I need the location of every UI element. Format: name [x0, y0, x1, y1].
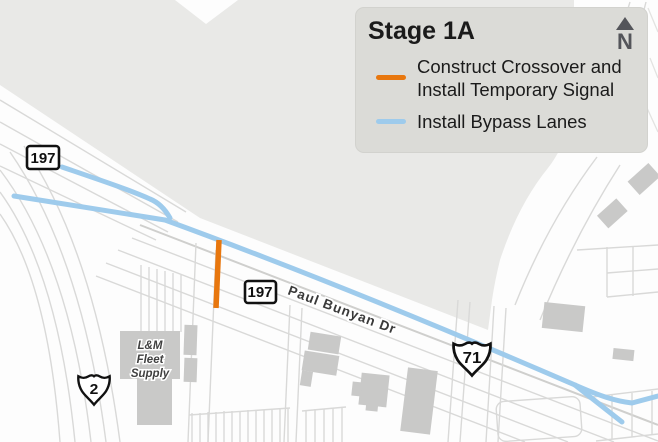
construction-staging-map: 197 197 2 71 Paul Bunyan Dr L&M Fleet Su…	[0, 0, 658, 442]
legend-item-crossover-line1: Construct Crossover and	[417, 55, 622, 78]
route-shield-197-west: 197	[27, 146, 59, 169]
bypass-swatch-icon	[376, 119, 406, 124]
route-shield-us2: 2	[78, 375, 109, 404]
legend-item-bypass: Install Bypass Lanes	[368, 110, 635, 133]
legend-items: Construct Crossover and Install Temporar…	[368, 55, 635, 133]
north-indicator: N	[616, 17, 634, 53]
crossover-swatch-icon	[376, 75, 406, 80]
legend-item-crossover-line2: Install Temporary Signal	[417, 78, 622, 101]
business-label-line2: Fleet	[137, 354, 165, 366]
crossover-line	[216, 240, 219, 308]
route-shield-197-east-number: 197	[247, 284, 272, 301]
north-label: N	[616, 31, 634, 53]
route-shield-197-west-number: 197	[30, 150, 55, 167]
legend-panel: Stage 1A N Construct Crossover and Insta…	[355, 7, 648, 153]
route-shield-us2-number: 2	[90, 381, 99, 398]
legend-item-crossover: Construct Crossover and Install Temporar…	[368, 55, 635, 101]
route-shield-us71-number: 71	[463, 349, 482, 366]
legend-title: Stage 1A	[368, 17, 635, 46]
route-shield-197-east: 197	[245, 281, 276, 303]
business-label-line1: L&M	[138, 340, 163, 352]
business-label-line3: Supply	[131, 368, 170, 380]
route-shield-us71: 71	[454, 343, 491, 376]
legend-item-bypass-line1: Install Bypass Lanes	[417, 110, 587, 133]
road-label-paul-bunyan-dr: Paul Bunyan Dr	[286, 283, 399, 337]
hatch-pattern	[647, 8, 658, 132]
